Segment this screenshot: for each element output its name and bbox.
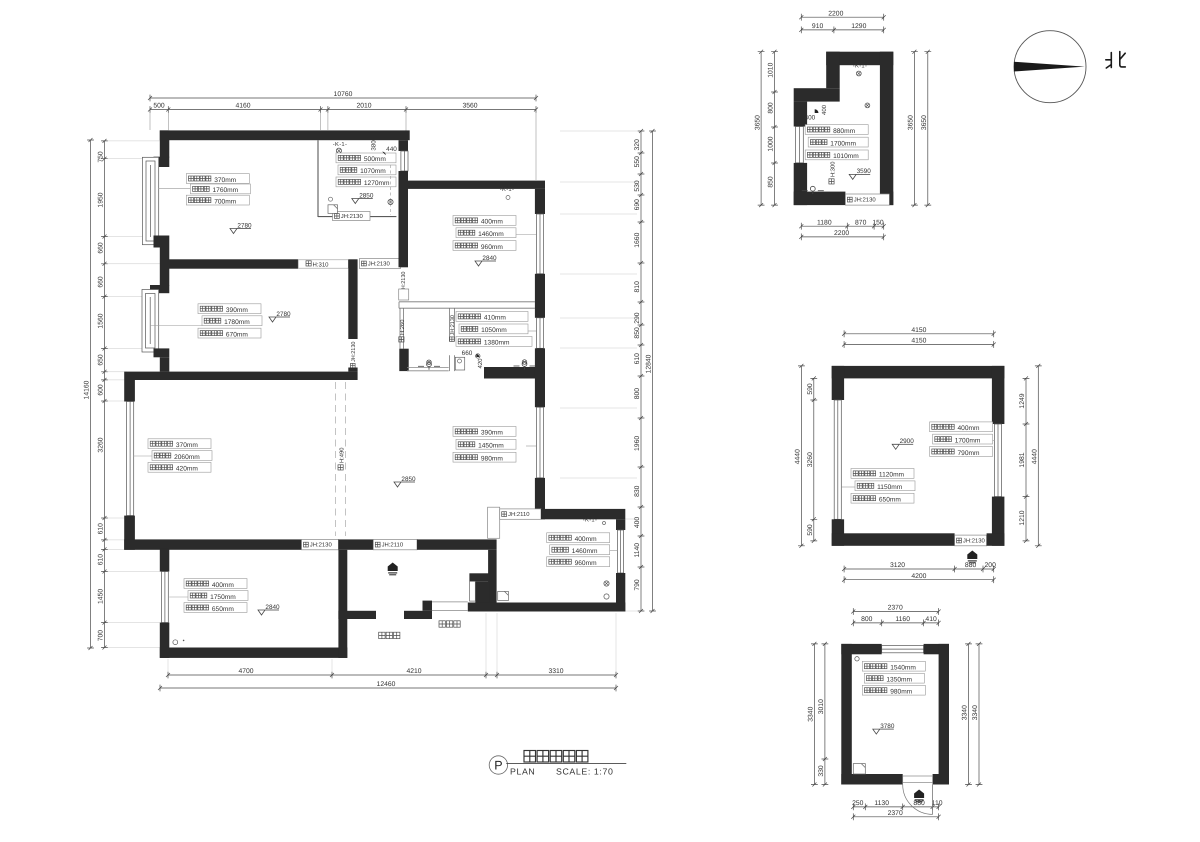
svg-text:980mm: 980mm [481,456,503,463]
svg-text:670mm: 670mm [226,331,248,338]
svg-text:660: 660 [98,276,105,288]
svg-text:400: 400 [805,115,816,122]
svg-text:830: 830 [634,485,641,497]
svg-text:H:260: H:260 [399,320,406,335]
svg-text:2900: 2900 [900,438,915,445]
svg-text:1540mm: 1540mm [890,665,916,672]
svg-text:800: 800 [768,102,775,114]
svg-text:3650: 3650 [754,115,761,130]
svg-text:600: 600 [98,384,105,396]
svg-text:440: 440 [386,146,397,153]
svg-text:3340: 3340 [808,706,815,721]
svg-text:400mm: 400mm [481,219,503,226]
svg-text:550: 550 [634,156,641,168]
svg-text:2840: 2840 [482,255,497,262]
svg-text:980mm: 980mm [890,689,912,696]
svg-text:660: 660 [462,350,473,357]
svg-text:4210: 4210 [406,668,421,675]
svg-text:250: 250 [852,800,864,807]
svg-text:410mm: 410mm [484,315,506,322]
svg-text:PLAN: PLAN [510,767,535,777]
svg-text:1350mm: 1350mm [886,677,912,684]
svg-text:1270mm: 1270mm [364,180,390,187]
svg-text:2010: 2010 [356,103,371,110]
svg-text:610: 610 [634,353,641,365]
svg-text:200: 200 [985,562,997,569]
svg-text:690: 690 [634,199,641,211]
svg-text:10760: 10760 [334,91,353,98]
svg-text:4150: 4150 [911,327,926,334]
svg-text:1560: 1560 [98,313,105,328]
svg-text:1660: 1660 [634,232,641,247]
svg-text:JH:2130: JH:2130 [963,538,986,545]
svg-text:1160: 1160 [895,616,910,623]
svg-text:2200: 2200 [834,230,849,237]
svg-text:1760mm: 1760mm [213,187,239,194]
svg-text:370mm: 370mm [176,442,198,449]
svg-text:610: 610 [98,523,105,535]
svg-text:650: 650 [98,354,105,366]
svg-text:390mm: 390mm [226,307,248,314]
svg-text:1050mm: 1050mm [481,327,507,334]
svg-text:2060mm: 2060mm [174,454,200,461]
svg-text:660: 660 [98,242,105,254]
svg-text:1700mm: 1700mm [955,437,981,444]
svg-text:H:310: H:310 [313,261,330,268]
svg-text:2780: 2780 [237,222,252,229]
svg-text:3590: 3590 [857,168,872,175]
svg-text:1150mm: 1150mm [877,484,903,491]
svg-text:JH:2130: JH:2130 [450,315,456,336]
svg-text:500: 500 [153,103,165,110]
svg-text:1780mm: 1780mm [224,319,250,326]
svg-text:1450: 1450 [98,589,105,604]
svg-text:800: 800 [861,616,873,623]
svg-text:500mm: 500mm [364,156,386,163]
svg-text:380: 380 [371,140,378,151]
svg-text:14160: 14160 [84,380,91,399]
svg-text:1130: 1130 [874,800,889,807]
svg-text:JH:2130: JH:2130 [341,213,364,220]
svg-text:400: 400 [634,517,641,529]
svg-text:4700: 4700 [238,668,253,675]
svg-text:-K-1-: -K-1- [853,64,867,70]
svg-text:1450mm: 1450mm [478,443,504,450]
svg-text:SCALE: 1:70: SCALE: 1:70 [556,767,613,777]
svg-text:850: 850 [768,176,775,188]
svg-text:1010: 1010 [768,62,775,77]
svg-text:370mm: 370mm [214,177,236,184]
svg-text:3340: 3340 [972,705,979,720]
svg-text:-K-1-: -K-1- [333,142,347,148]
svg-text:3780: 3780 [880,723,895,730]
svg-text:410: 410 [925,616,937,623]
svg-text:870: 870 [855,219,867,226]
svg-text:4150: 4150 [911,338,926,345]
svg-text:3650: 3650 [921,115,928,130]
svg-text:700mm: 700mm [214,198,236,205]
svg-text:1070mm: 1070mm [360,168,386,175]
svg-text:1210: 1210 [1019,510,1026,525]
svg-text:JH:2110: JH:2110 [382,542,404,549]
svg-text:2200: 2200 [828,10,843,17]
svg-text:150: 150 [872,219,884,226]
svg-text:4160: 4160 [235,103,250,110]
svg-text:3260: 3260 [98,437,105,452]
svg-text:1249: 1249 [1019,393,1026,408]
svg-text:JH:2130: JH:2130 [854,197,877,204]
svg-text:1460mm: 1460mm [478,231,504,238]
svg-text:880: 880 [913,800,925,807]
svg-text:2370: 2370 [888,605,903,612]
svg-text:1120mm: 1120mm [879,472,905,479]
svg-text:3310: 3310 [548,668,563,675]
svg-text:790: 790 [634,579,641,591]
svg-text:1981: 1981 [1019,452,1026,467]
svg-text:650mm: 650mm [879,497,901,504]
svg-text:1700mm: 1700mm [830,140,856,147]
svg-text:1000: 1000 [768,136,775,151]
svg-text:800: 800 [634,388,641,400]
svg-text:JH:2130: JH:2130 [351,342,357,363]
svg-text:3560: 3560 [462,103,477,110]
svg-text:1180: 1180 [817,219,832,226]
svg-text:3340: 3340 [962,705,969,720]
svg-text:400mm: 400mm [212,582,234,589]
svg-text:750: 750 [98,151,105,163]
svg-text:2780: 2780 [276,311,291,318]
svg-text:610: 610 [98,554,105,566]
svg-text:1380mm: 1380mm [484,340,510,347]
svg-text:1290: 1290 [851,23,866,30]
svg-text:JH:2110: JH:2110 [508,511,530,518]
svg-text:320: 320 [634,139,641,151]
svg-text:2370: 2370 [888,810,903,817]
svg-text:1950: 1950 [98,192,105,207]
svg-text:1140: 1140 [634,543,641,558]
svg-text:110: 110 [932,800,943,807]
svg-text:700: 700 [98,630,105,642]
svg-text:420: 420 [477,358,484,369]
svg-text:1750mm: 1750mm [210,594,236,601]
svg-text:960mm: 960mm [575,560,597,567]
svg-text:H:490: H:490 [338,448,345,463]
svg-text:330: 330 [818,765,825,777]
svg-text:3010: 3010 [818,699,825,714]
svg-text:JH:2130: JH:2130 [310,542,333,549]
svg-text:3260: 3260 [807,452,814,467]
svg-text:590: 590 [807,383,814,395]
svg-text:JH:2130: JH:2130 [368,261,391,268]
svg-text:12460: 12460 [377,681,396,688]
svg-text:420mm: 420mm [176,466,198,473]
svg-text:H:300: H:300 [829,162,836,177]
svg-text:2850: 2850 [401,476,416,483]
svg-text:3120: 3120 [890,562,905,569]
svg-text:3650: 3650 [908,115,915,130]
svg-text:400: 400 [821,104,828,115]
svg-text:910: 910 [812,23,824,30]
svg-text:590: 590 [807,524,814,536]
svg-text:-K-1-: -K-1- [500,187,514,193]
svg-text:790mm: 790mm [958,450,980,457]
svg-text:-K-1-: -K-1- [583,518,597,524]
svg-text:810: 810 [634,281,641,293]
svg-text:12840: 12840 [646,354,653,373]
svg-text:400mm: 400mm [958,425,980,432]
svg-text:650mm: 650mm [212,606,234,613]
svg-text:2840: 2840 [265,604,280,611]
svg-text:P: P [494,759,502,773]
svg-text:880mm: 880mm [833,128,855,135]
svg-text:1010mm: 1010mm [833,153,859,160]
svg-text:1960: 1960 [634,436,641,451]
svg-text:1460mm: 1460mm [572,548,598,555]
svg-text:390mm: 390mm [481,430,503,437]
svg-text:960mm: 960mm [481,244,503,251]
svg-text:4440: 4440 [1032,449,1039,464]
svg-text:2850: 2850 [359,192,374,199]
svg-text:4440: 4440 [795,449,802,464]
svg-text:4200: 4200 [911,573,926,580]
svg-text:400mm: 400mm [575,536,597,543]
svg-text:850: 850 [634,327,641,339]
